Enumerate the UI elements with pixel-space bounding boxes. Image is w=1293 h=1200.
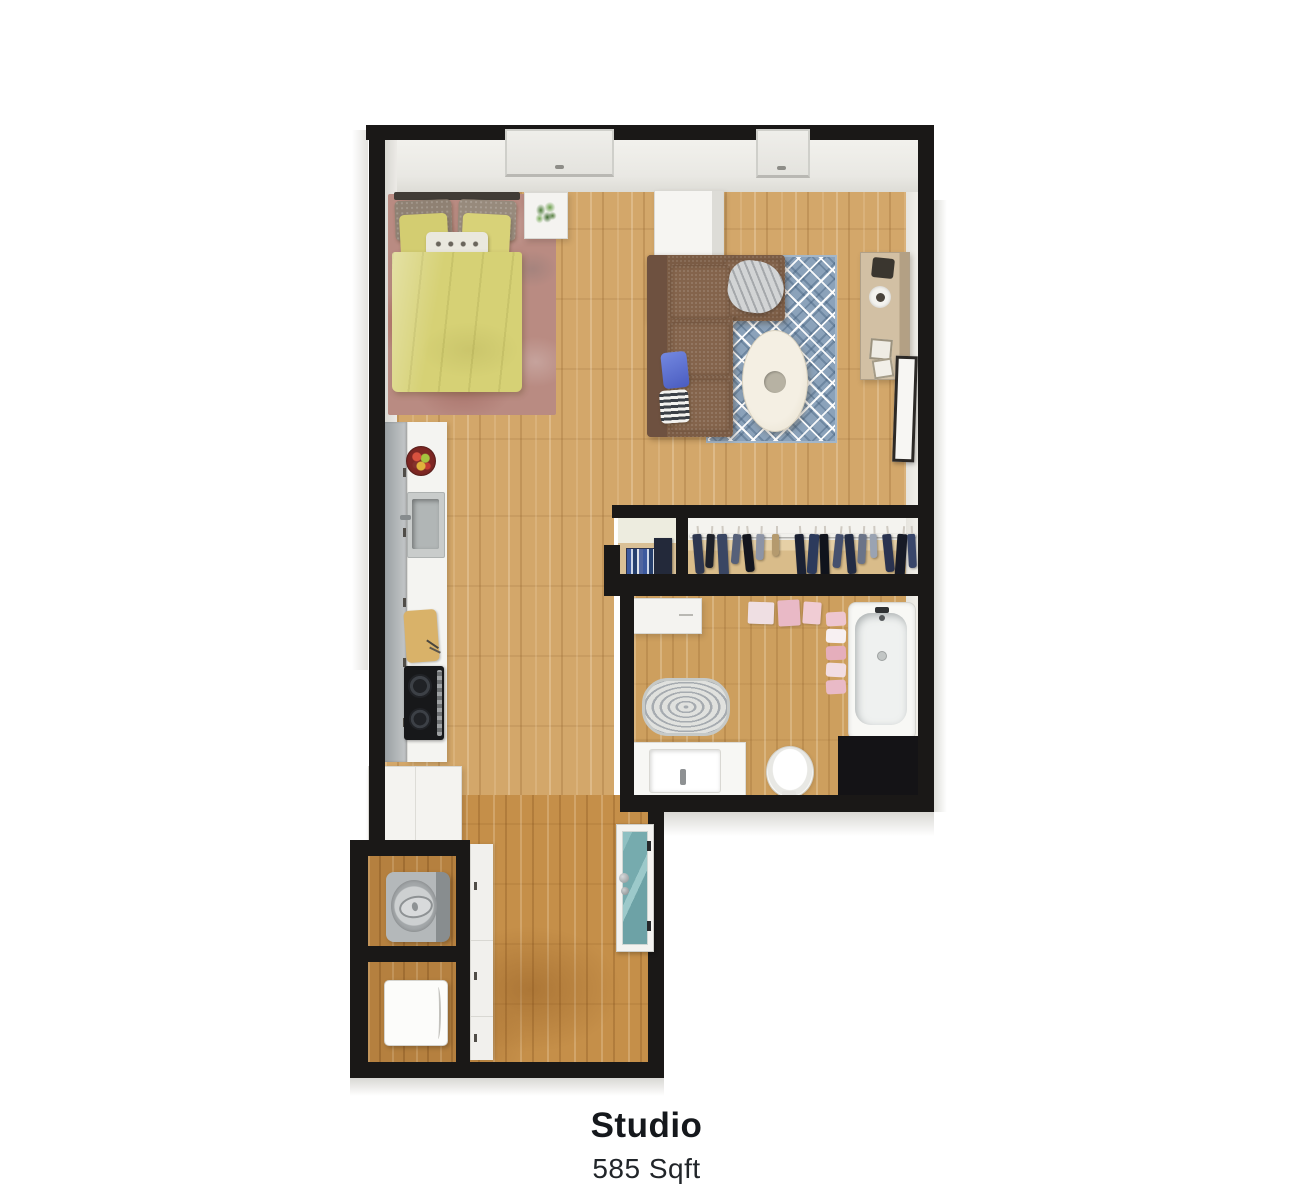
- outer-shadow-bathroom: [620, 812, 934, 836]
- alcove-bookshelf: [626, 548, 656, 576]
- cooktop-burner: [409, 708, 431, 730]
- wall-closet-bathroom: [620, 574, 920, 596]
- coffee-table-tray: [764, 371, 786, 393]
- plan-title: Studio: [0, 1106, 1293, 1146]
- floor-plan-page: Studio 585 Sqft: [0, 0, 1293, 1200]
- wall-laundry-middle: [350, 946, 470, 962]
- plan-area-label: 585 Sqft: [0, 1153, 1293, 1185]
- outer-shadow-bottom: [350, 1078, 664, 1096]
- bathtub-faucet-dot: [879, 615, 885, 621]
- cabinet-handle: [403, 528, 406, 537]
- entry-door: [616, 824, 654, 952]
- towel-stack: [826, 612, 846, 696]
- cooktop-controls: [437, 670, 442, 736]
- console-bowl-item: [869, 286, 891, 308]
- wall-closet-divider: [676, 505, 688, 585]
- console-frame-item: [872, 358, 895, 380]
- vanity-faucet: [680, 769, 686, 785]
- door-knob: [619, 873, 629, 883]
- alcove-dark-unit: [654, 538, 672, 574]
- hanging-garment: [907, 534, 917, 568]
- kitchen-sink: [407, 492, 445, 558]
- hanging-garment: [882, 534, 895, 573]
- hanging-garment: [731, 534, 742, 565]
- bathtub-drain: [877, 651, 887, 661]
- cabinet-handle: [474, 1034, 477, 1042]
- cabinet-handle: [474, 972, 477, 980]
- console-speaker-item: [871, 257, 895, 279]
- wall-right: [918, 125, 934, 812]
- washer-handle-slot: [411, 902, 418, 912]
- bath-mat: [642, 678, 730, 736]
- folded-towel: [826, 679, 847, 694]
- outer-shadow-right: [934, 200, 947, 812]
- closet-clothes: [688, 519, 918, 577]
- cabinet-seam: [471, 940, 493, 941]
- blue-pillow: [660, 351, 690, 390]
- hanging-garment: [857, 534, 867, 564]
- cooktop-burner: [408, 674, 432, 698]
- caption: Studio 585 Sqft: [0, 1106, 1293, 1185]
- cutting-board: [403, 609, 440, 663]
- door-hinge: [647, 921, 651, 931]
- sink-vanity: [622, 742, 746, 797]
- folded-towel: [826, 662, 847, 677]
- sofa-seat-cushion: [670, 265, 730, 319]
- washer: [386, 872, 450, 942]
- bathtub: [848, 602, 916, 740]
- bathtub-basin: [855, 613, 907, 725]
- wardrobe-cabinet: [654, 190, 724, 258]
- hanging-towel: [777, 599, 800, 626]
- console-bowl-center: [876, 293, 885, 302]
- cabinet-handle: [403, 598, 406, 607]
- wall-bathroom-bottom: [620, 795, 934, 812]
- window: [756, 129, 810, 178]
- wall-closet-top: [612, 505, 920, 518]
- window: [505, 129, 614, 177]
- hanging-towel: [748, 602, 775, 625]
- hanging-garment: [894, 534, 907, 579]
- wall-alcove-stub: [604, 545, 620, 596]
- coffee-table: [742, 330, 808, 432]
- hanging-garment: [832, 534, 844, 569]
- hanging-garment: [772, 534, 779, 556]
- hanging-garment: [717, 534, 729, 576]
- hanging-garment: [742, 534, 755, 573]
- hallway-cabinet-column: [470, 844, 493, 1060]
- window-latch: [777, 166, 786, 170]
- plant: [533, 199, 559, 227]
- hanging-garment: [844, 534, 856, 575]
- sink-faucet: [400, 515, 411, 520]
- door-hinge: [647, 841, 651, 851]
- dryer-door-line: [435, 987, 441, 1039]
- hanging-garment: [692, 534, 704, 575]
- cabinet-handle: [403, 468, 406, 477]
- hanging-garment: [756, 534, 765, 560]
- wall-top: [366, 125, 934, 140]
- bed-duvet: [392, 252, 522, 392]
- bathtub-faucet: [875, 607, 889, 613]
- bed-headboard: [394, 192, 520, 200]
- picture-frame: [892, 356, 918, 463]
- folded-towel: [826, 646, 846, 661]
- sink-basin: [412, 499, 439, 549]
- wall-laundry-right: [456, 840, 470, 1078]
- striped-pillow: [659, 389, 690, 424]
- folded-towel: [826, 611, 847, 626]
- outer-shadow-left: [352, 130, 368, 670]
- hanging-garment: [807, 534, 820, 575]
- bathroom-cabinet: [630, 598, 702, 634]
- wall-laundry-top: [350, 840, 470, 856]
- fruit-bowl: [406, 446, 436, 476]
- cabinet-handle-line: [679, 614, 693, 616]
- door-knob: [621, 887, 629, 895]
- wall-left: [369, 125, 385, 852]
- hanging-garment: [705, 534, 715, 568]
- nightstand: [524, 192, 568, 239]
- folded-towel: [826, 629, 846, 644]
- hanging-garment: [870, 534, 878, 558]
- toilet: [766, 746, 814, 798]
- dryer: [384, 980, 448, 1046]
- cooktop: [404, 666, 444, 740]
- hanging-towel: [802, 601, 821, 624]
- wall-bottom: [350, 1062, 664, 1078]
- wall-bathroom-left: [620, 574, 634, 812]
- cabinet-seam: [415, 767, 416, 843]
- hanging-garment: [794, 534, 806, 579]
- top-wall-face: [385, 140, 918, 192]
- cabinet-handle: [474, 882, 477, 890]
- window-latch: [555, 165, 564, 169]
- bed: [392, 192, 522, 394]
- cabinet-seam: [471, 1016, 493, 1017]
